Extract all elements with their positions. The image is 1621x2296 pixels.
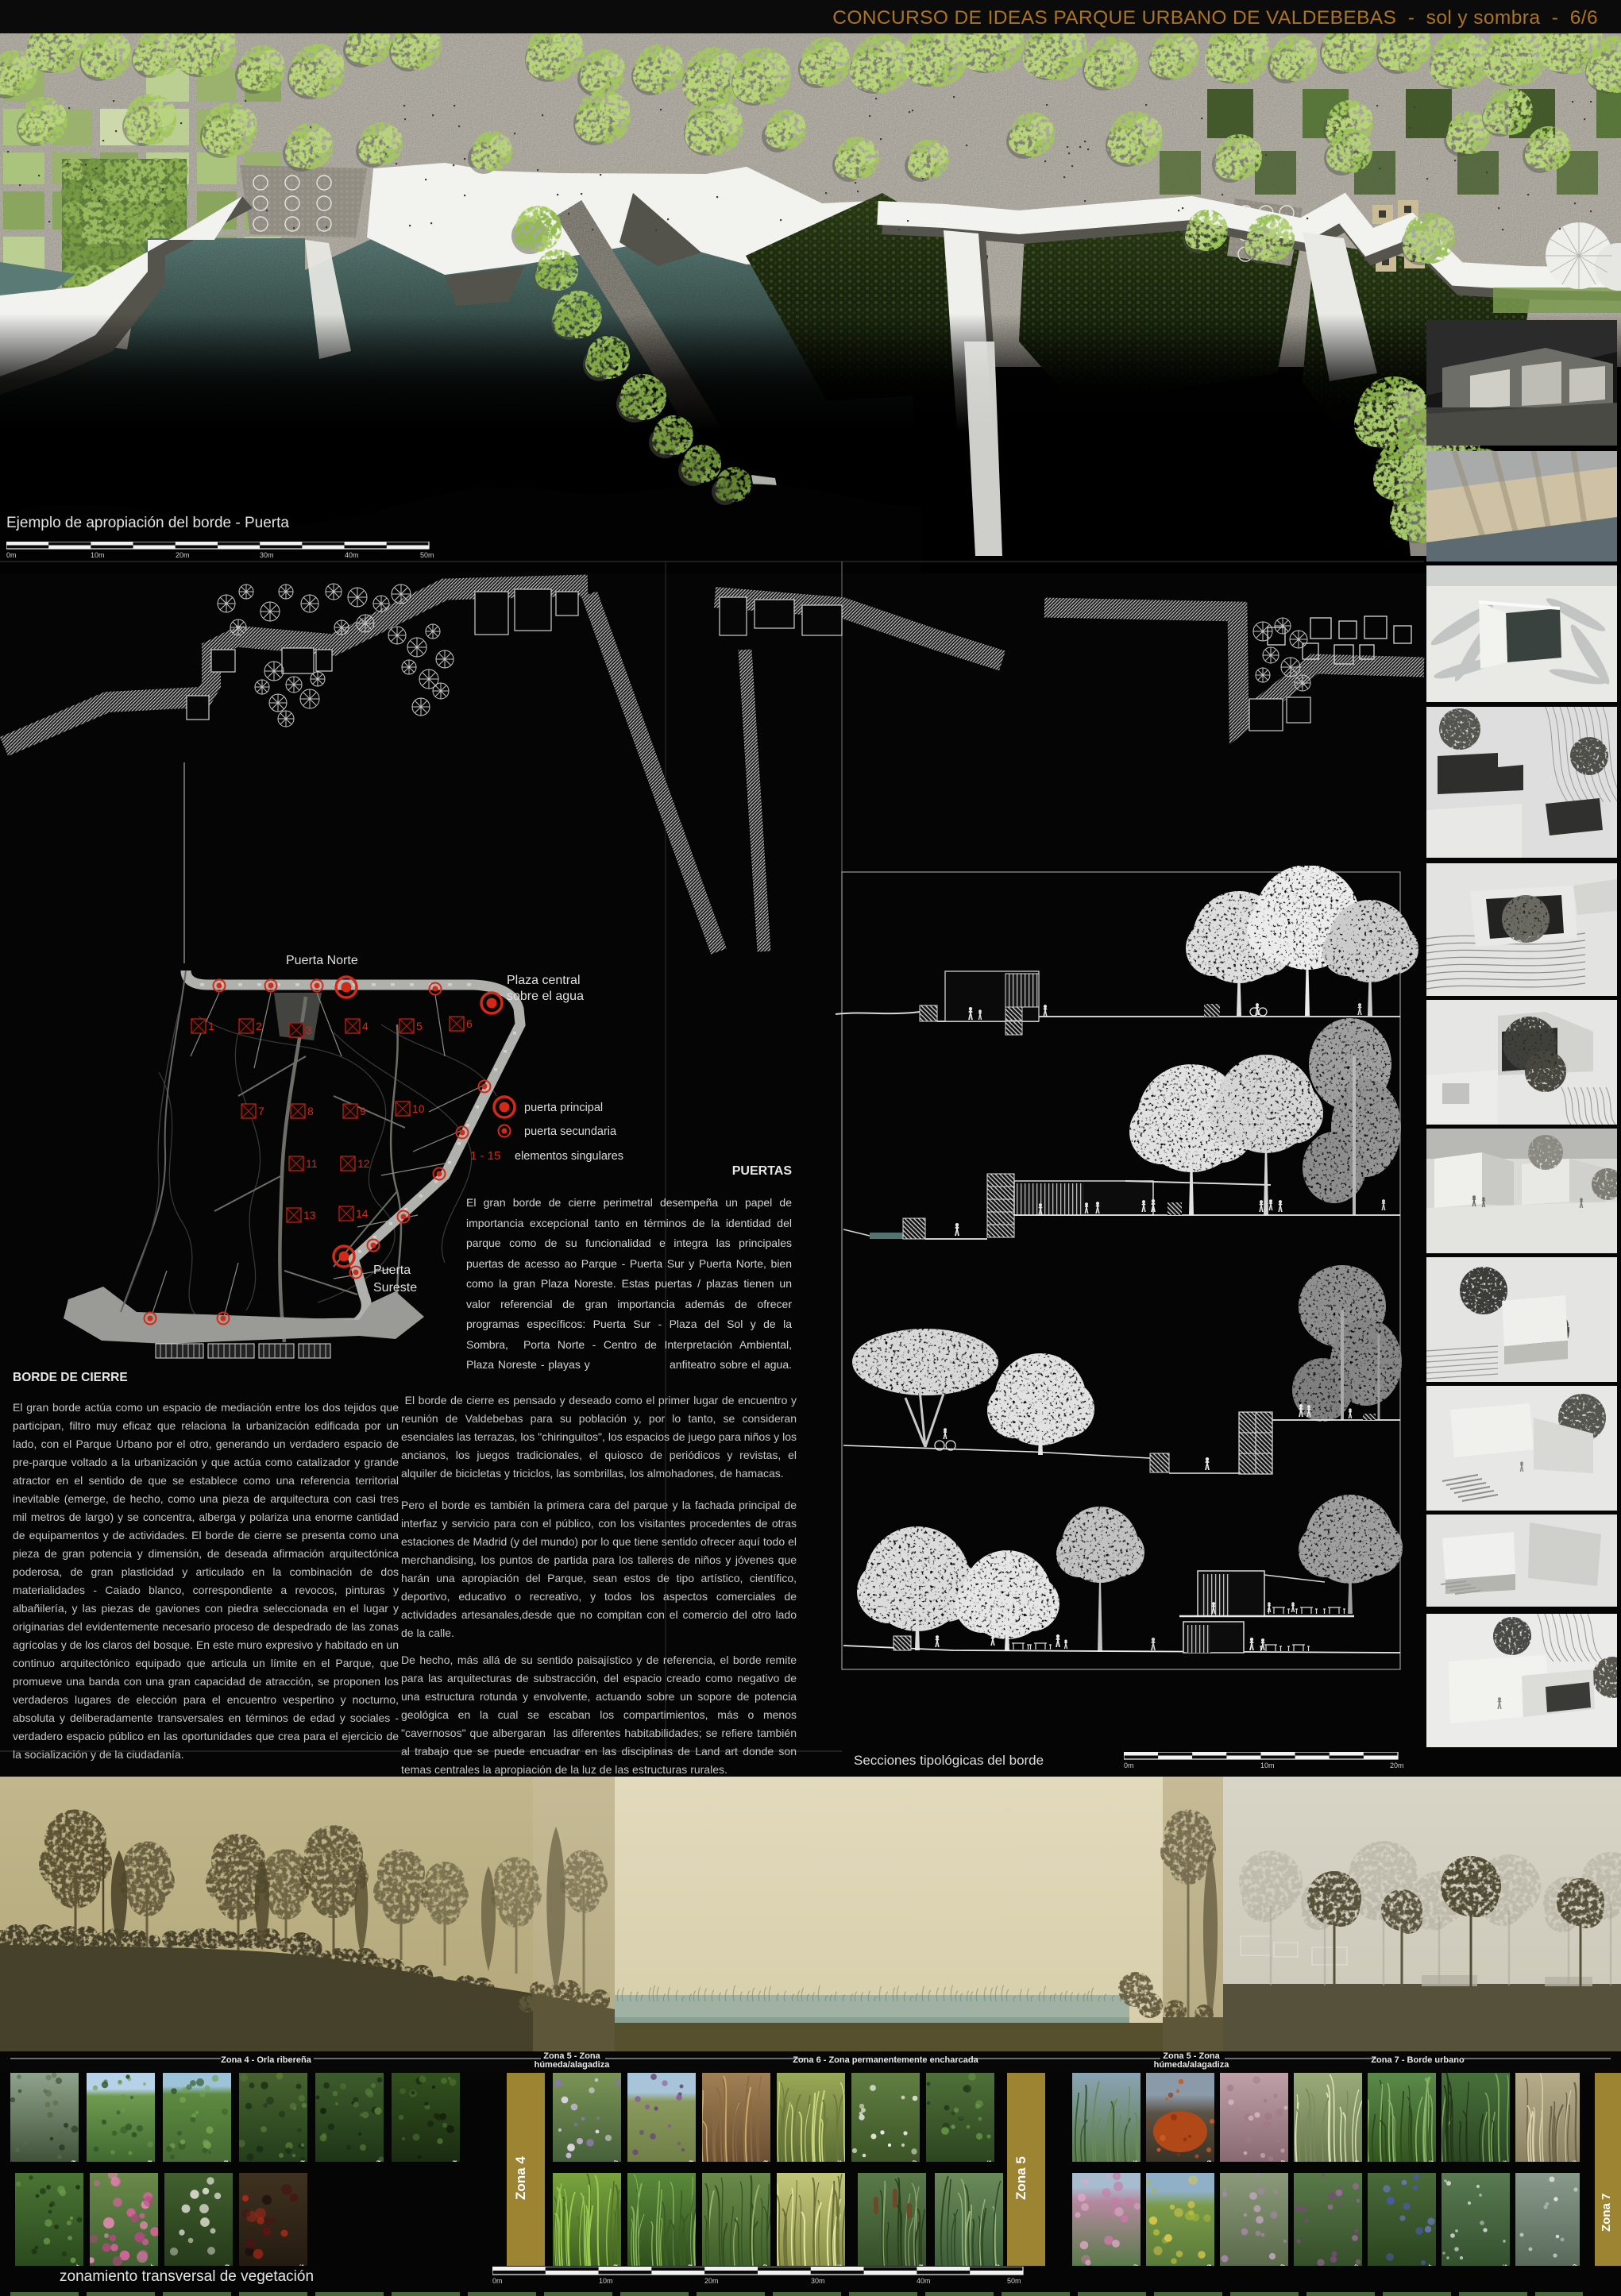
svg-text:10m: 10m [599,2277,613,2285]
svg-text:2: 2 [256,1020,262,1032]
svg-text:10: 10 [412,1102,425,1115]
svg-text:0m: 0m [492,2277,503,2285]
svg-text:30m: 30m [811,2277,825,2285]
svg-text:Secciones tipológicas del bord: Secciones tipológicas del borde [854,1753,1044,1768]
svg-text:20m: 20m [1390,1762,1404,1769]
svg-text:Sureste: Sureste [373,1281,417,1295]
svg-text:0m: 0m [1124,1762,1134,1769]
svg-text:40m: 40m [917,2277,931,2285]
svg-text:10m: 10m [1260,1762,1275,1769]
svg-text:Plaza central: Plaza central [507,974,581,987]
svg-text:8: 8 [307,1105,314,1117]
svg-text:12: 12 [357,1157,370,1170]
svg-text:puerta secundaria: puerta secundaria [524,1125,617,1138]
svg-text:3: 3 [306,1024,312,1036]
svg-text:puerta principal: puerta principal [524,1102,603,1114]
svg-text:1 - 15: 1 - 15 [470,1149,500,1163]
svg-text:4: 4 [362,1020,369,1032]
svg-text:Puerta: Puerta [373,1264,411,1277]
svg-text:6: 6 [466,1017,473,1030]
svg-text:13: 13 [303,1209,316,1221]
svg-text:1: 1 [208,1020,214,1032]
svg-text:20m: 20m [704,2277,719,2285]
svg-text:Puerta Norte: Puerta Norte [286,954,358,967]
svg-text:5: 5 [416,1020,423,1032]
svg-text:7: 7 [258,1105,264,1117]
svg-text:11: 11 [306,1157,318,1170]
svg-text:elementos singulares: elementos singulares [515,1150,623,1163]
svg-text:sobre el agua: sobre el agua [507,990,584,1003]
svg-text:9: 9 [360,1105,366,1117]
svg-text:14: 14 [356,1207,369,1220]
svg-text:50m: 50m [1007,2277,1021,2285]
